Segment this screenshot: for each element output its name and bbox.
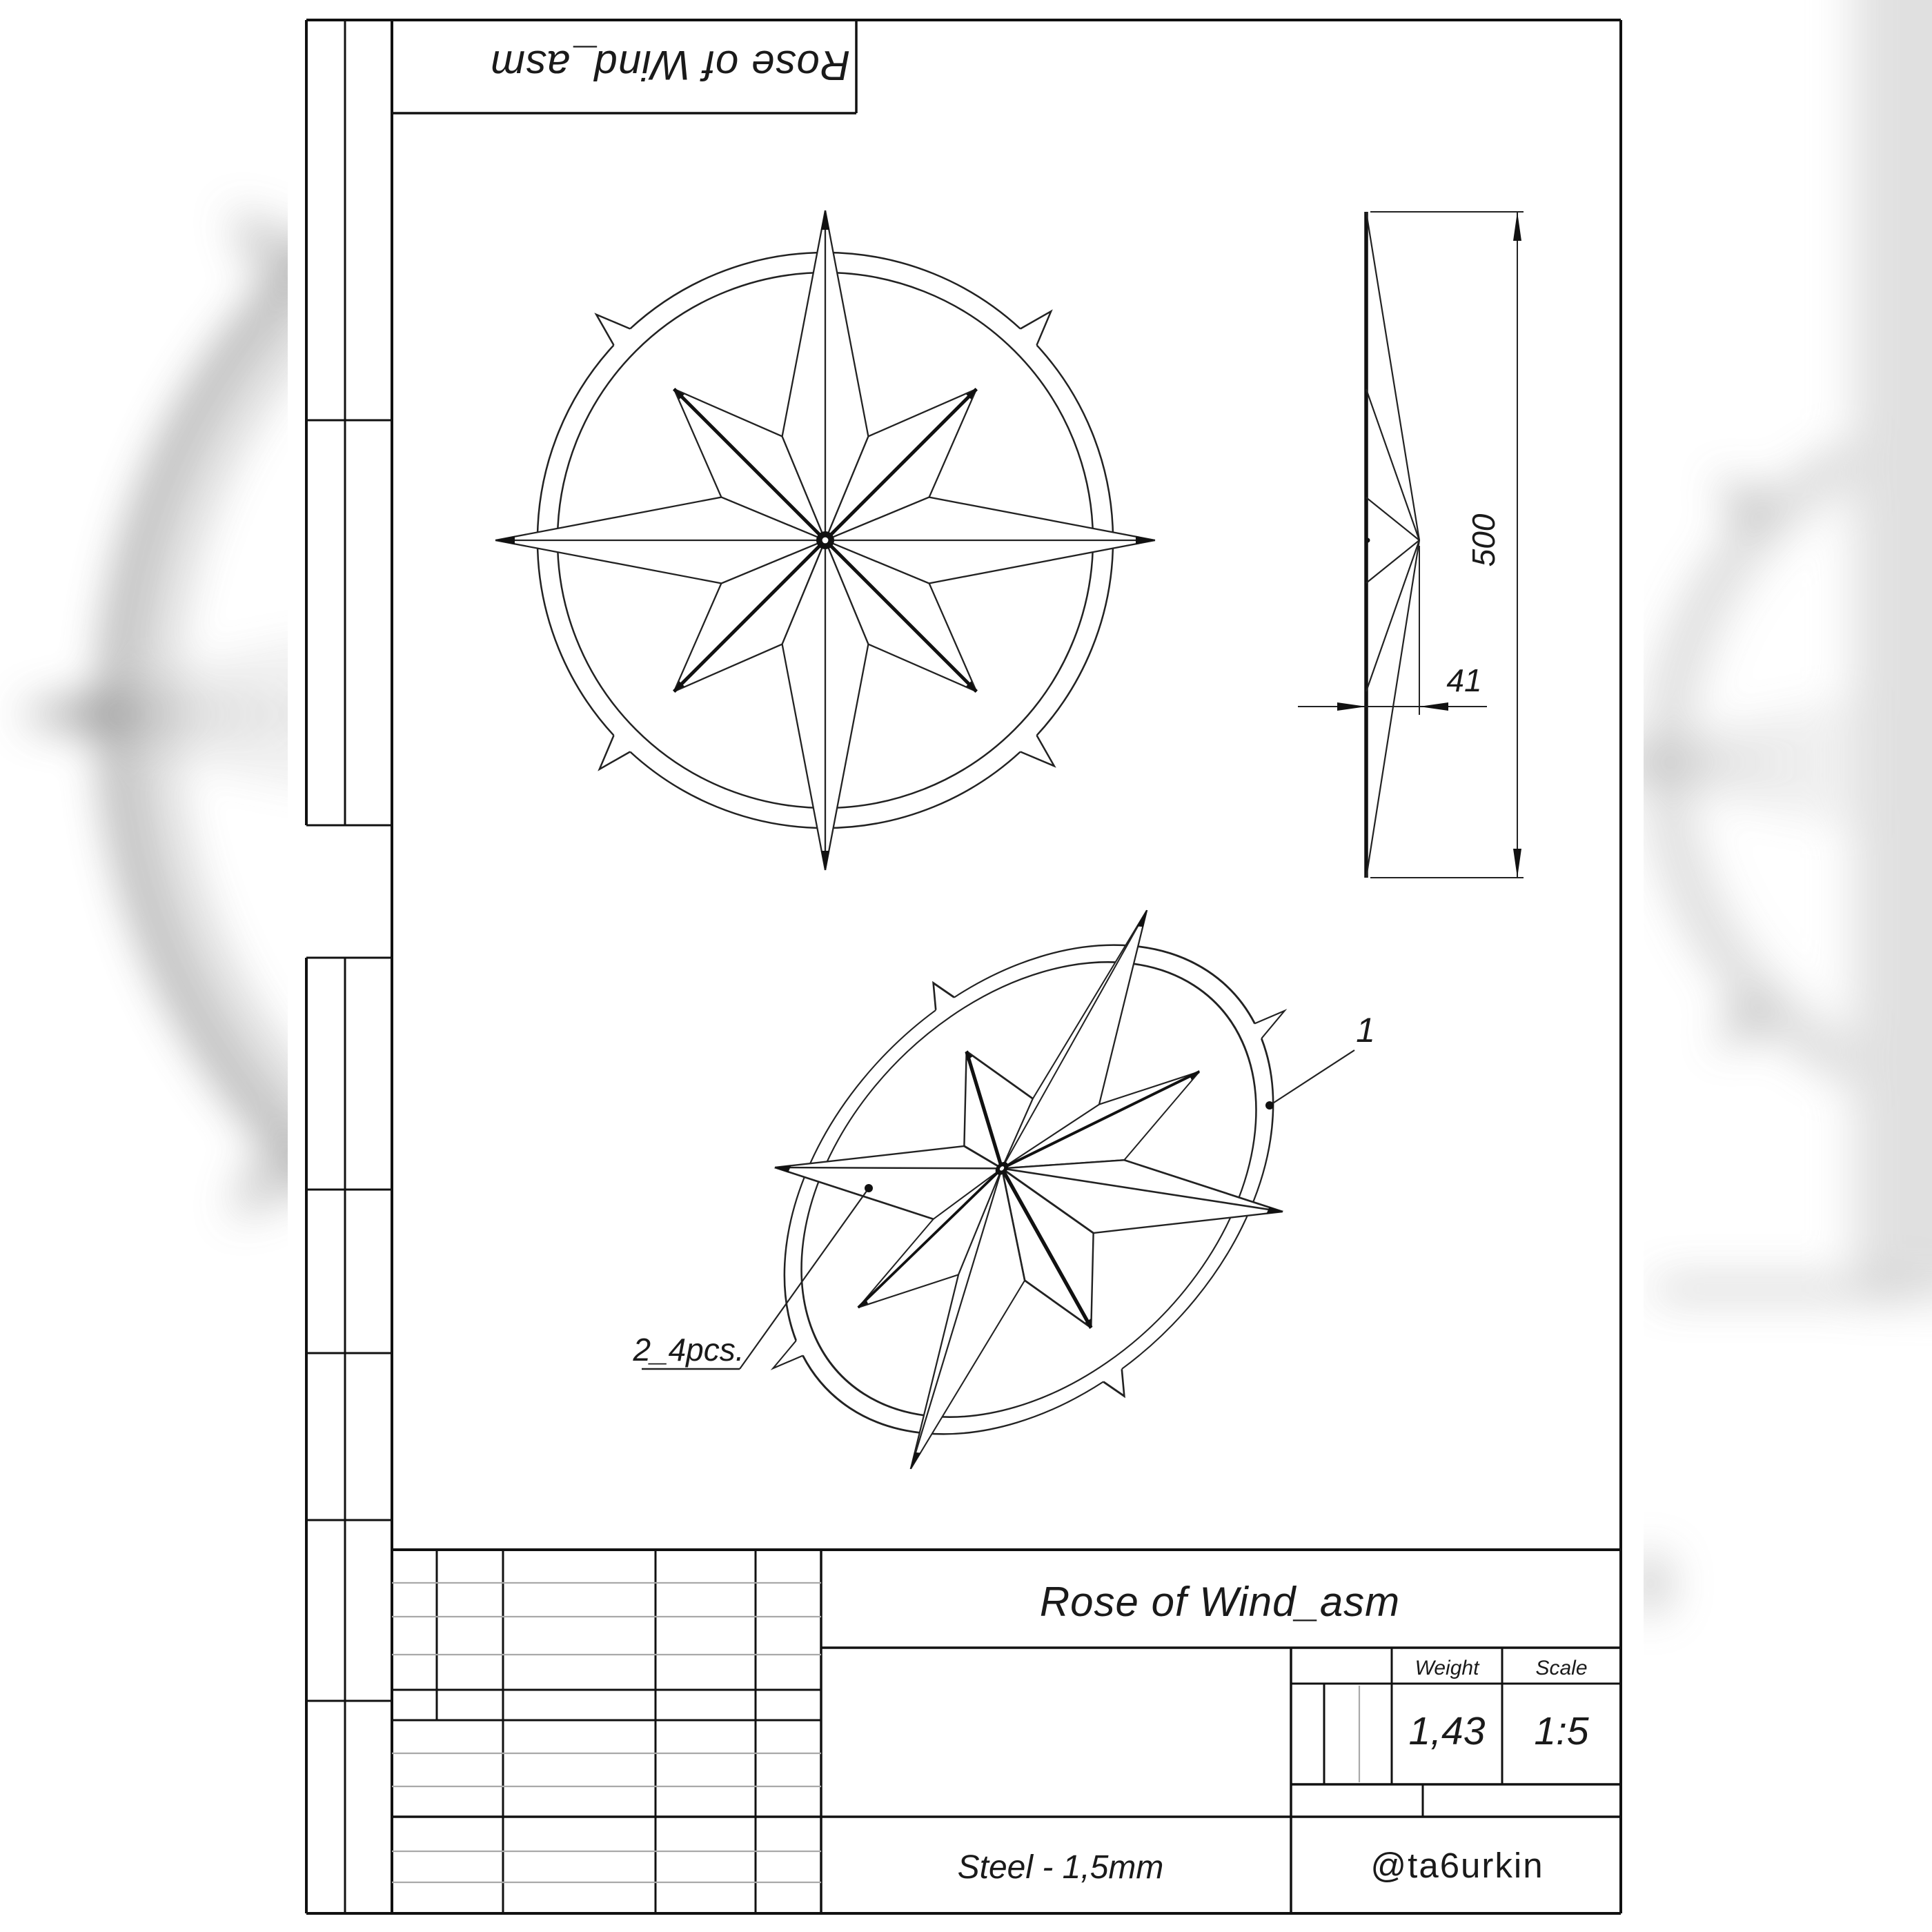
svg-text:Weight: Weight (1415, 1657, 1480, 1679)
svg-text:1:5: 1:5 (1534, 1709, 1589, 1753)
svg-text:@ta6urkin: @ta6urkin (1370, 1846, 1544, 1885)
svg-text:Steel - 1,5mm: Steel - 1,5mm (958, 1849, 1164, 1886)
svg-text:Rose of Wind_asm: Rose of Wind_asm (1040, 1579, 1400, 1625)
svg-text:1: 1 (1356, 1011, 1375, 1049)
svg-text:500: 500 (1466, 513, 1501, 566)
svg-text:Scale: Scale (1535, 1657, 1587, 1679)
svg-text:2_4pcs.: 2_4pcs. (632, 1332, 744, 1368)
svg-text:Rose of Wind_asm: Rose of Wind_asm (490, 42, 850, 88)
svg-text:41: 41 (1446, 662, 1481, 698)
svg-text:1,43: 1,43 (1409, 1709, 1486, 1753)
